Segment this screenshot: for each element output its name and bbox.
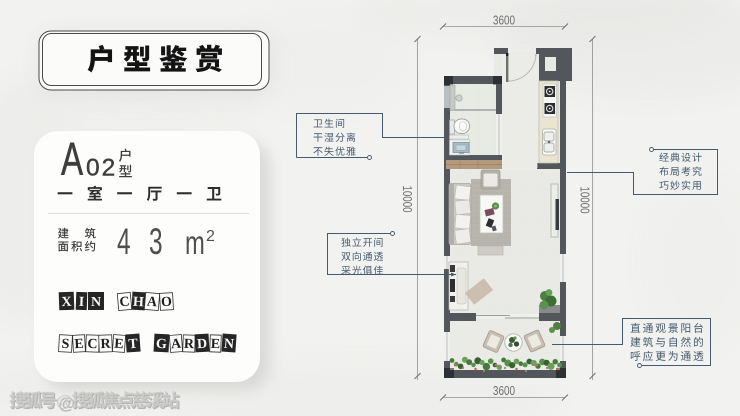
svg-text:3600: 3600: [493, 385, 515, 398]
svg-text:A: A: [61, 135, 83, 185]
svg-text:10000: 10000: [577, 186, 590, 213]
svg-text:O: O: [161, 295, 173, 311]
svg-text:X: X: [61, 295, 72, 310]
svg-text:R: R: [100, 337, 112, 352]
svg-text:3: 3: [149, 221, 163, 262]
svg-text:m: m: [185, 225, 205, 262]
svg-text:02: 02: [86, 155, 117, 182]
svg-text:A: A: [170, 337, 182, 353]
svg-text:10000: 10000: [400, 185, 413, 212]
svg-text:S: S: [61, 337, 70, 352]
svg-text:N: N: [91, 295, 101, 310]
svg-text:D: D: [197, 337, 208, 353]
svg-text:2: 2: [206, 228, 215, 245]
svg-text:G: G: [156, 337, 168, 353]
svg-text:C: C: [87, 337, 98, 352]
svg-text:E: E: [211, 337, 221, 352]
svg-text:3600: 3600: [493, 15, 515, 28]
svg-text:N: N: [223, 337, 234, 353]
svg-text:E: E: [114, 337, 124, 353]
svg-text:T: T: [128, 337, 139, 353]
svg-text:R: R: [184, 337, 196, 352]
svg-text:C: C: [119, 295, 130, 311]
svg-text:E: E: [74, 337, 84, 352]
svg-text:I: I: [78, 295, 84, 310]
svg-text:H: H: [133, 295, 145, 311]
svg-text:@: @: [56, 392, 73, 411]
svg-text:4: 4: [117, 221, 131, 262]
